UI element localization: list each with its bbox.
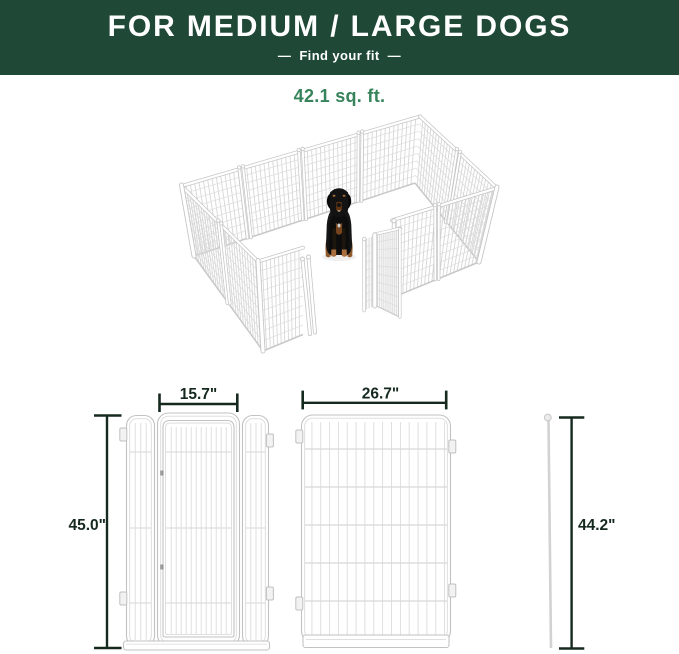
svg-text:45.0": 45.0"	[68, 517, 106, 534]
svg-text:15.7": 15.7"	[180, 386, 218, 403]
svg-text:26.7": 26.7"	[362, 386, 400, 403]
svg-text:44.2": 44.2"	[578, 517, 616, 534]
